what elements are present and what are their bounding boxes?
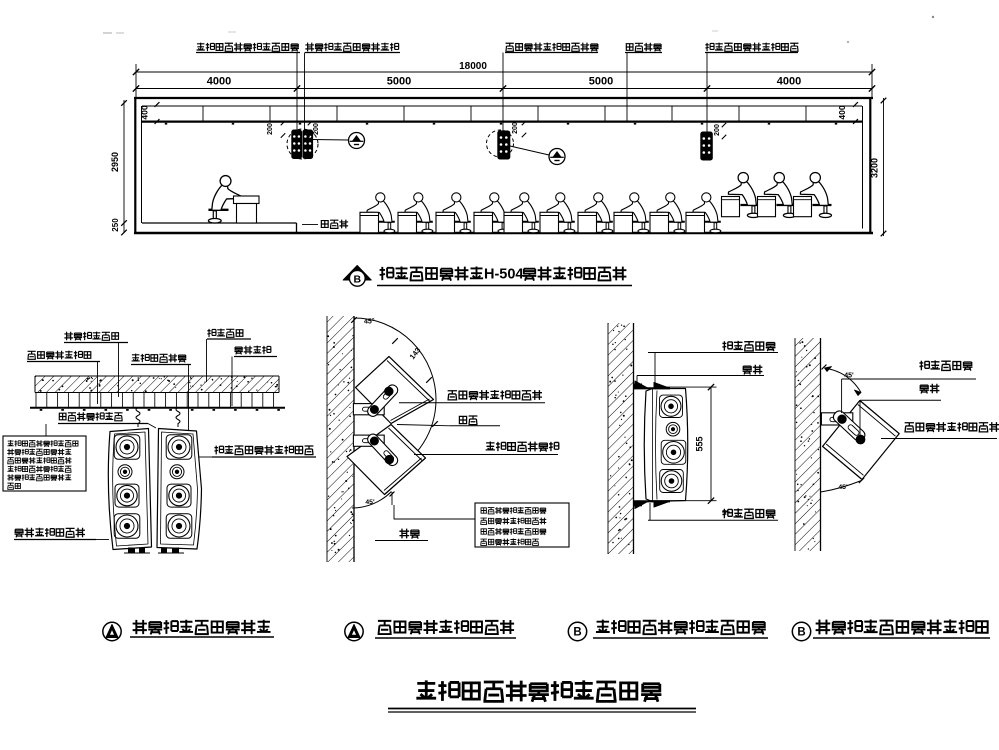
svg-text:18000: 18000 (459, 61, 487, 72)
svg-text:200: 200 (714, 124, 721, 136)
svg-text:B: B (797, 627, 805, 639)
svg-text:200: 200 (512, 122, 519, 134)
svg-text:250: 250 (111, 218, 120, 232)
svg-text:45': 45' (838, 484, 848, 491)
svg-text:400: 400 (140, 105, 150, 119)
svg-text:B: B (573, 627, 581, 639)
svg-text:400: 400 (837, 105, 847, 119)
svg-text:H-504: H-504 (484, 267, 524, 283)
svg-text:4000: 4000 (777, 76, 801, 88)
svg-text:200: 200 (267, 123, 274, 135)
svg-text:5000: 5000 (589, 76, 613, 88)
svg-text:45': 45' (844, 373, 854, 380)
svg-text:45°: 45° (364, 318, 375, 326)
svg-text:555: 555 (695, 436, 705, 451)
svg-text:4000: 4000 (207, 76, 231, 88)
svg-text:B: B (354, 274, 362, 286)
svg-text:2950: 2950 (110, 152, 120, 172)
svg-text:45': 45' (365, 499, 375, 506)
svg-text:200: 200 (313, 123, 320, 135)
svg-text:5000: 5000 (387, 76, 411, 88)
svg-text:3200: 3200 (870, 158, 880, 178)
